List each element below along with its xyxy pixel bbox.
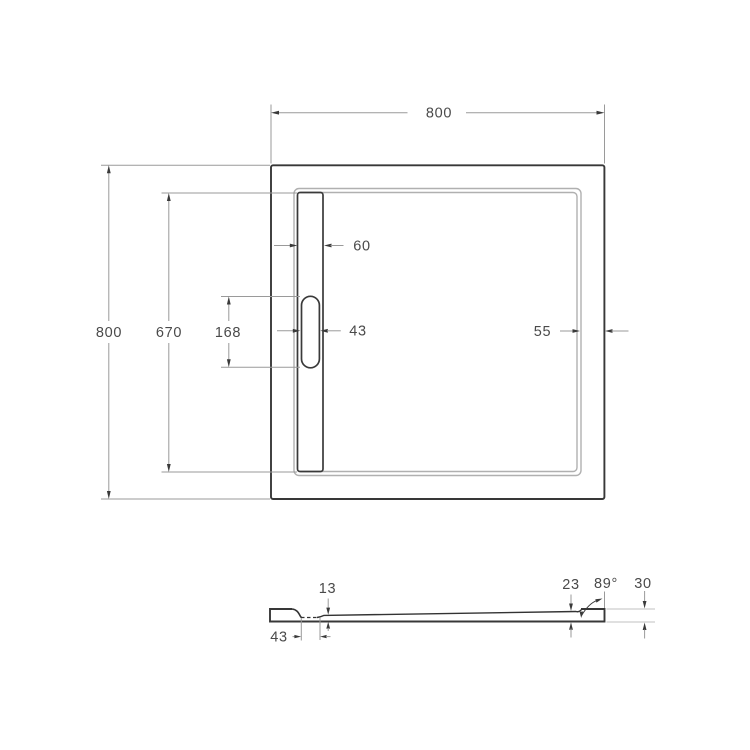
svg-text:13: 13 — [319, 581, 337, 597]
svg-text:670: 670 — [156, 325, 182, 341]
svg-text:43: 43 — [349, 324, 367, 340]
svg-text:800: 800 — [96, 325, 122, 341]
svg-text:23: 23 — [562, 577, 580, 593]
svg-text:55: 55 — [534, 324, 552, 340]
svg-text:800: 800 — [426, 106, 452, 122]
svg-text:60: 60 — [353, 238, 371, 254]
svg-text:168: 168 — [215, 325, 241, 341]
svg-text:89°: 89° — [594, 576, 618, 592]
svg-text:43: 43 — [270, 629, 288, 645]
svg-text:30: 30 — [634, 576, 652, 592]
